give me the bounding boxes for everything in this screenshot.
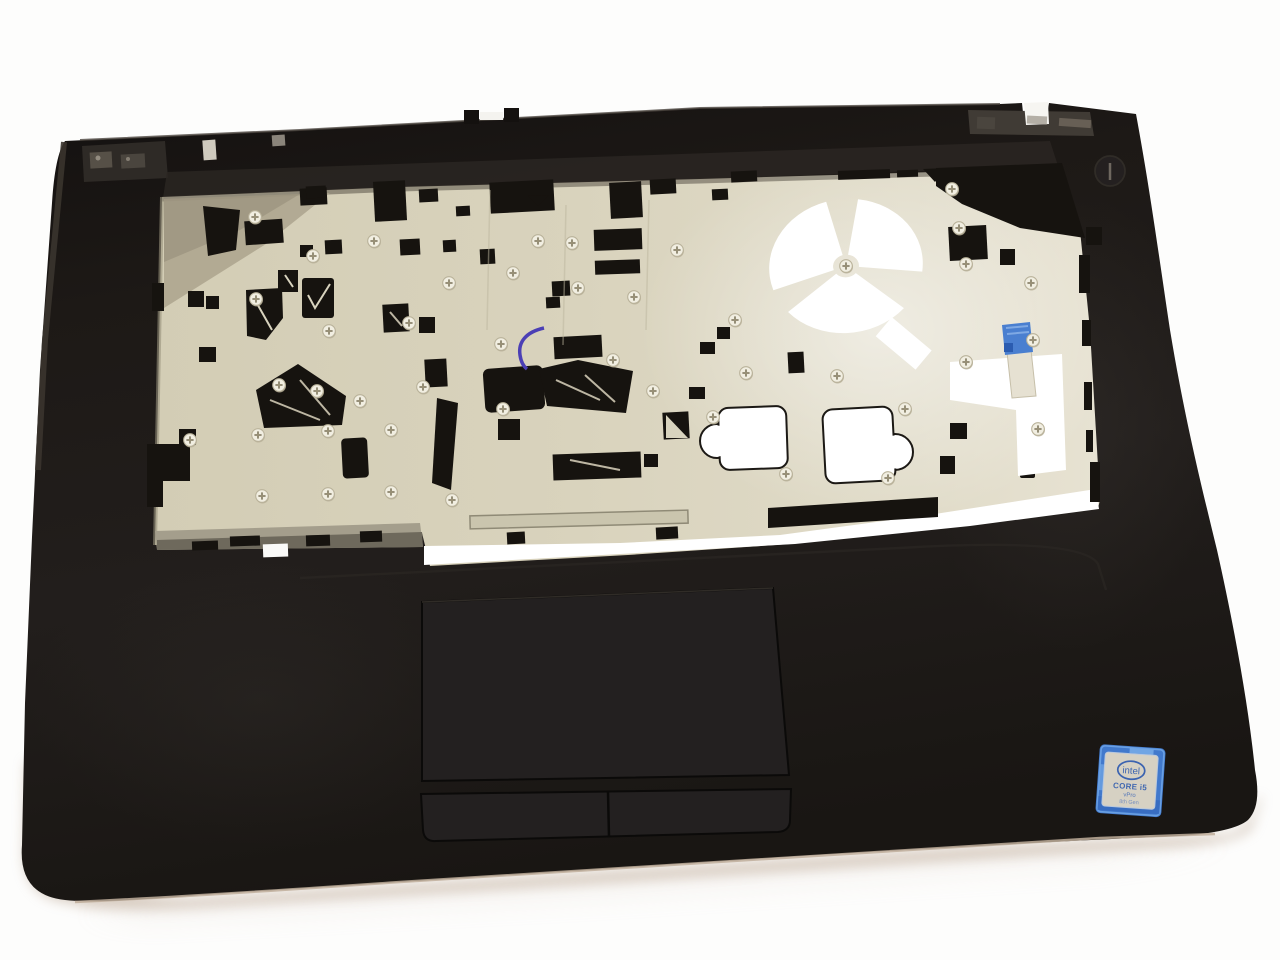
- svg-text:intel: intel: [1122, 765, 1140, 777]
- svg-text:vPro: vPro: [1123, 792, 1136, 799]
